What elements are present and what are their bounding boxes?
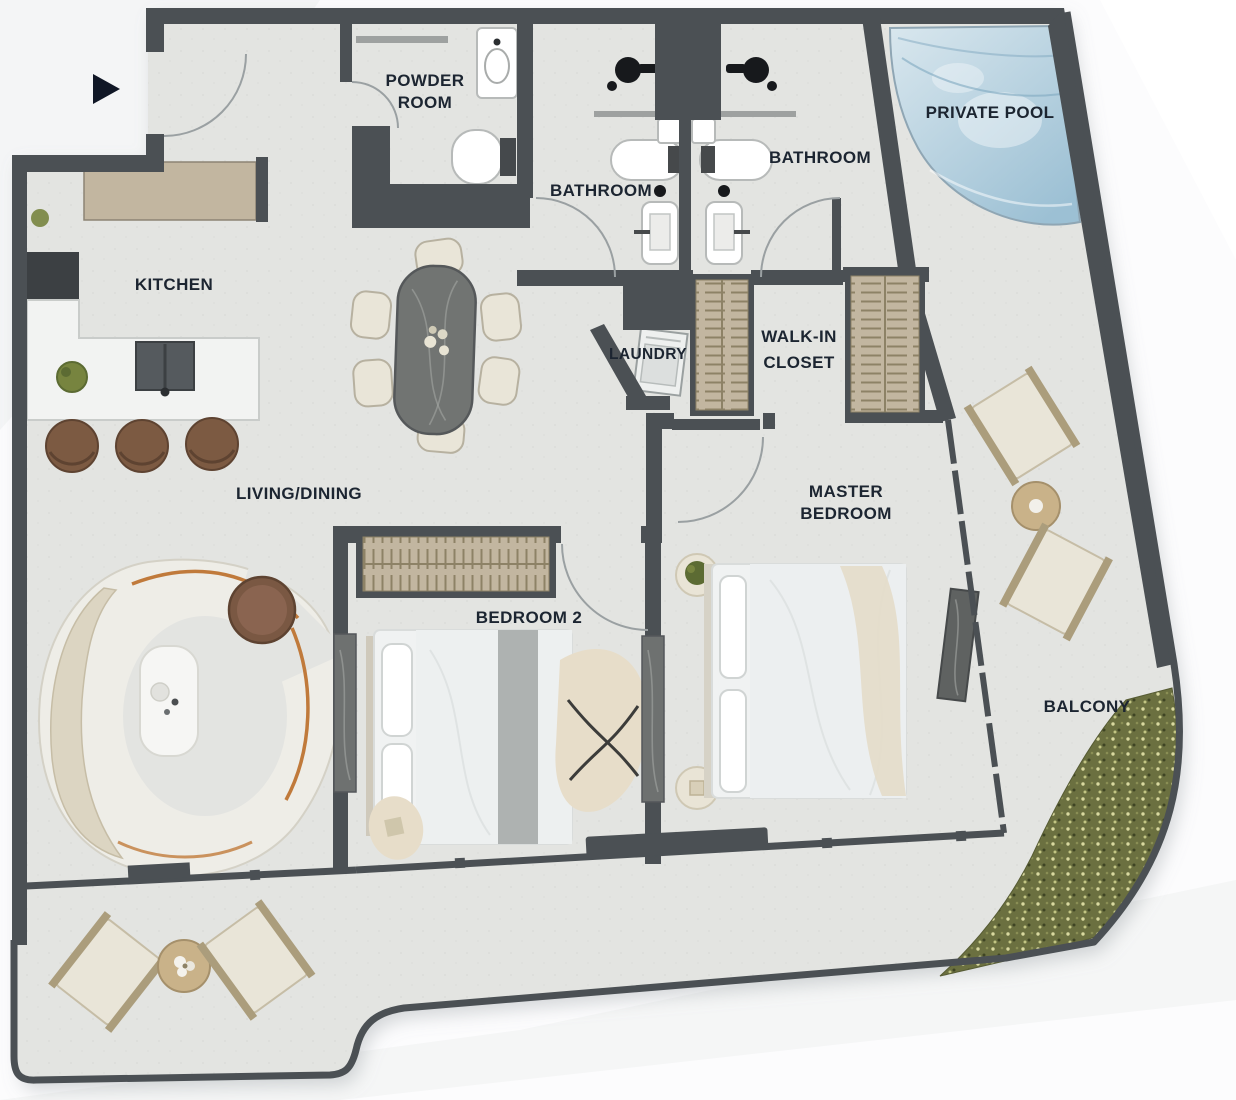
room-label-powder-room: ROOM — [398, 93, 452, 112]
room-label-walk-in-closet: WALK-IN — [761, 327, 837, 346]
pillow — [720, 690, 746, 792]
floor-plan-stage: POWDER ROOM BATHROOM BATHROOM PRIVATE PO… — [0, 0, 1236, 1100]
faucet — [161, 388, 170, 397]
cistern — [500, 138, 516, 176]
stove — [27, 252, 79, 302]
shelf — [356, 36, 448, 43]
room-label-master-bedroom: BEDROOM — [800, 504, 892, 523]
room-label-laundry: LAUNDRY — [609, 346, 687, 363]
wardrobe-closet-left — [690, 274, 754, 416]
dining-table — [393, 265, 477, 436]
flush-button — [654, 185, 666, 197]
herb-plant — [31, 209, 49, 227]
wardrobe-bedroom2 — [356, 530, 556, 598]
wash-basin — [485, 49, 509, 83]
dining-chair — [477, 356, 521, 407]
wall-sink — [658, 119, 681, 143]
floor-plan: POWDER ROOM BATHROOM BATHROOM PRIVATE PO… — [0, 0, 1236, 1100]
kitchen-counter-cap — [256, 157, 268, 222]
room-label-bathroom-left: BATHROOM — [550, 181, 652, 200]
tub-faucet — [701, 146, 715, 173]
room-label-bathroom-right: BATHROOM — [769, 148, 871, 167]
room-label-powder-room: POWDER — [386, 71, 465, 90]
dining-chair — [350, 290, 393, 340]
sofa-side-table — [140, 646, 198, 756]
coffee-table — [229, 577, 295, 643]
pillow — [720, 576, 746, 678]
toilet — [452, 130, 502, 184]
room-label-living-dining: LIVING/DINING — [236, 484, 362, 503]
pillow — [382, 644, 412, 736]
blanket-runner — [498, 630, 538, 844]
master-bed — [704, 564, 906, 798]
wall-sink — [692, 119, 715, 143]
wardrobe-closet-right — [845, 270, 925, 418]
plant-pot — [57, 362, 87, 392]
duvet — [416, 630, 572, 844]
room-label-balcony: BALCONY — [1044, 697, 1131, 716]
room-label-private-pool: PRIVATE POOL — [926, 103, 1055, 122]
dining-chair — [352, 359, 393, 408]
room-label-master-bedroom: MASTER — [809, 482, 883, 501]
flush-button — [718, 185, 730, 197]
room-label-kitchen: KITCHEN — [135, 275, 213, 294]
room-label-bedroom-2: BEDROOM 2 — [476, 608, 583, 627]
room-label-walk-in-closet: CLOSET — [763, 353, 835, 372]
dining-chair — [480, 292, 523, 342]
